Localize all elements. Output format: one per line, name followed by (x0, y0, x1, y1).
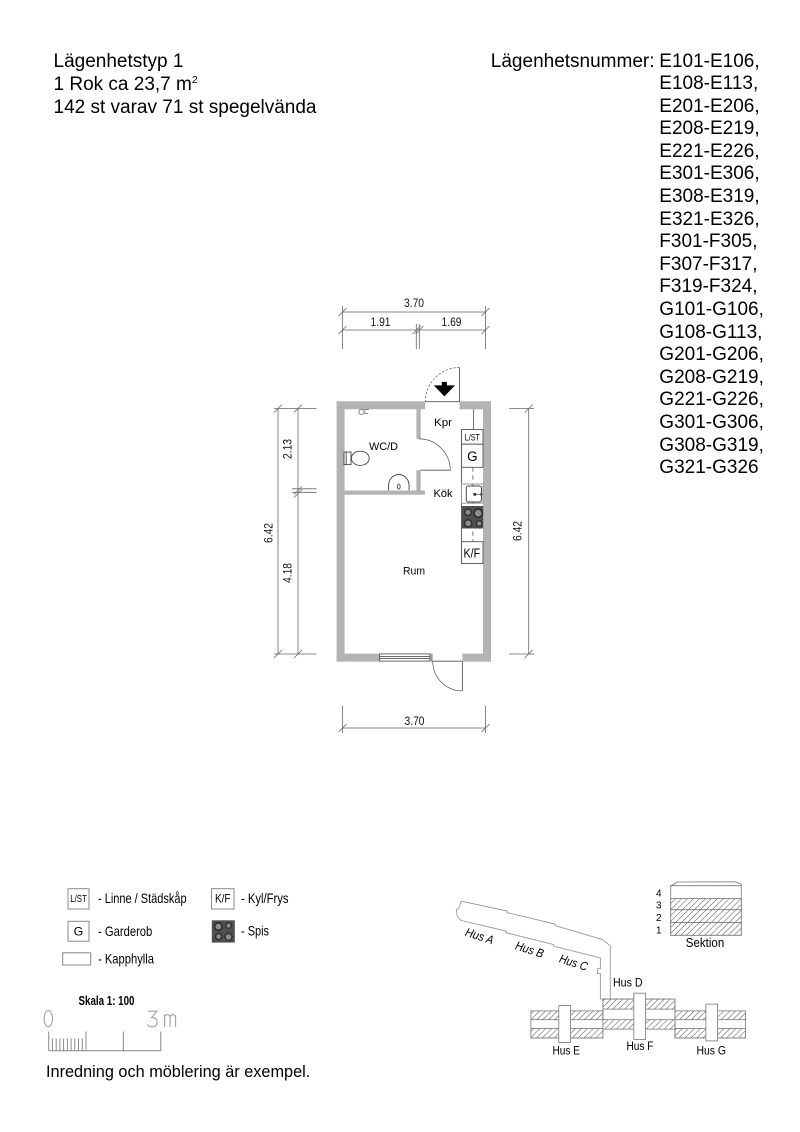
svg-text:- Linne / Städskåp: - Linne / Städskåp (98, 891, 187, 906)
svg-text:Hus A: Hus A (464, 925, 496, 947)
svg-text:4: 4 (656, 888, 662, 899)
svg-text:6.42: 6.42 (262, 523, 276, 543)
svg-text:Hus E: Hus E (553, 1044, 581, 1058)
svg-text:WC/D: WC/D (369, 441, 398, 453)
svg-text:- Kapphylla: - Kapphylla (98, 951, 154, 966)
svg-text:L/ST: L/ST (465, 432, 480, 443)
svg-text:- Spis: - Spis (241, 923, 269, 938)
svg-text:3.70: 3.70 (404, 296, 424, 310)
svg-text:Hus B: Hus B (514, 939, 546, 961)
svg-text:2.13: 2.13 (281, 439, 295, 459)
svg-text:- Garderob: - Garderob (98, 924, 152, 939)
svg-text:1.69: 1.69 (442, 315, 462, 329)
svg-text:G: G (74, 925, 84, 939)
svg-text:K/F: K/F (464, 547, 481, 561)
svg-text:6.42: 6.42 (511, 521, 525, 541)
svg-text:Hus G: Hus G (697, 1044, 727, 1058)
svg-text:2: 2 (656, 913, 662, 924)
svg-text:Hus C: Hus C (558, 952, 590, 974)
svg-text:- Kyl/Frys: - Kyl/Frys (241, 891, 289, 906)
svg-text:G: G (467, 449, 477, 464)
svg-text:Hus F: Hus F (627, 1039, 654, 1053)
svg-text:Hus D: Hus D (613, 976, 643, 990)
svg-text:Skala 1: 100: Skala 1: 100 (79, 994, 135, 1008)
svg-text:Rum: Rum (403, 566, 425, 578)
svg-text:Kök: Kök (434, 488, 453, 500)
svg-text:K/F: K/F (215, 892, 231, 906)
svg-text:3.70: 3.70 (405, 714, 425, 728)
svg-text:4.18: 4.18 (281, 563, 295, 583)
svg-text:Kpr: Kpr (434, 417, 452, 429)
svg-text:1: 1 (656, 926, 662, 937)
svg-text:3: 3 (656, 901, 662, 912)
svg-text:Sektion: Sektion (686, 936, 725, 950)
svg-text:1.91: 1.91 (371, 315, 391, 329)
svg-text:L/ST: L/ST (70, 894, 87, 905)
